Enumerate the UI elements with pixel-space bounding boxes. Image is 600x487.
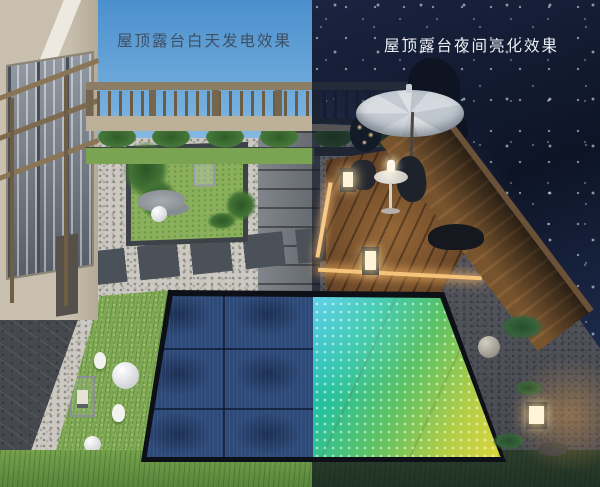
chair-sculpture [193, 162, 215, 187]
rabbit-sculpture [112, 404, 125, 422]
planter-grass-band [86, 148, 314, 164]
building-windows [6, 51, 94, 280]
rooftop-terrace-render: 屋顶露台白天发电效果 屋顶露台夜间亮化效果 [0, 0, 600, 487]
fern-plant [207, 211, 237, 230]
cube-lantern [362, 247, 379, 275]
caption-day: 屋顶露台白天发电效果 [117, 29, 292, 51]
cube-lantern [340, 168, 356, 192]
building-facade [0, 0, 98, 320]
sphere-ornament [151, 206, 167, 223]
outdoor-sofa [428, 224, 484, 250]
umbrella-finial [406, 84, 412, 93]
pergola-post [64, 76, 68, 306]
table-lamp [387, 160, 395, 172]
pergola-post [10, 98, 14, 303]
sphere-ornament [112, 362, 139, 389]
side-table-stem [389, 182, 392, 210]
rabbit-sculpture [94, 352, 106, 369]
caption-night: 屋顶露台夜间亮化效果 [384, 34, 559, 56]
cube-lantern [526, 402, 547, 429]
side-table-base [381, 208, 400, 214]
